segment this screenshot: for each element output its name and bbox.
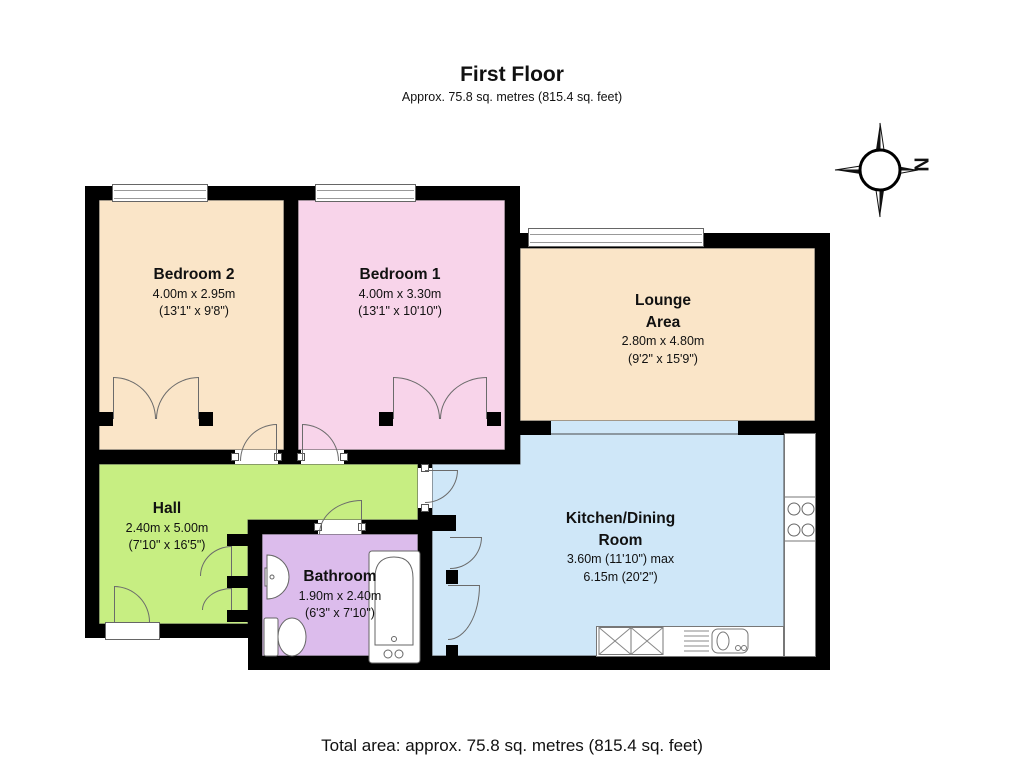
- bathroom-metric: 1.90m x 2.40m: [278, 588, 402, 606]
- lounge-name-line1: Lounge: [573, 290, 753, 312]
- wall-wardrobe1-stub-right: [487, 412, 501, 426]
- window-glass: [530, 234, 702, 243]
- kitchen-name-line2: Room: [528, 530, 713, 552]
- bedroom1-window: [315, 184, 416, 202]
- bedroom1-imperial: (13'1" x 10'10"): [305, 303, 495, 321]
- kitchen-metric: 3.60m (11'10") max: [528, 551, 713, 569]
- window-glass: [317, 190, 414, 199]
- jamb: [421, 504, 429, 512]
- wall-cupboard-stub-mid: [446, 570, 458, 584]
- compass-north-label: N: [909, 157, 932, 171]
- hall-label: Hall 2.40m x 5.00m (7'10" x 16'5"): [93, 498, 241, 555]
- kitchen-counter-bottom: [596, 626, 784, 657]
- floor-plan-page: First Floor Approx. 75.8 sq. metres (815…: [0, 0, 1024, 768]
- bedroom2-metric: 4.00m x 2.95m: [108, 286, 280, 304]
- bedroom2-window: [112, 184, 208, 202]
- bedroom2-imperial: (13'1" x 9'8"): [108, 303, 280, 321]
- wall-wardrobe2-stub-right: [199, 412, 213, 426]
- wall-cupboard-stub-bottom: [446, 645, 458, 658]
- openplan-strip: [551, 421, 738, 435]
- wall-bottom-exterior: [248, 656, 830, 670]
- wall-hallcupboard-stub-bottom: [227, 610, 262, 622]
- hall-name: Hall: [93, 498, 241, 520]
- lounge-label: Lounge Area 2.80m x 4.80m (9'2" x 15'9"): [573, 290, 753, 368]
- wall-wardrobe2-stub-left: [99, 412, 113, 426]
- bedroom2-label: Bedroom 2 4.00m x 2.95m (13'1" x 9'8"): [108, 264, 280, 321]
- kitchen-counter-right: [784, 433, 816, 657]
- window-glass: [114, 190, 206, 199]
- bedroom1-label: Bedroom 1 4.00m x 3.30m (13'1" x 10'10"): [305, 264, 495, 321]
- jamb: [340, 453, 348, 461]
- wall-right-exterior: [815, 233, 830, 670]
- lounge-imperial: (9'2" x 15'9"): [573, 351, 753, 369]
- lounge-window: [528, 228, 704, 247]
- lounge-name-line2: Area: [573, 312, 753, 334]
- hall-metric: 2.40m x 5.00m: [93, 520, 241, 538]
- hall-imperial: (7'10" x 16'5"): [93, 537, 241, 555]
- wall-hallcupboard-stub-mid: [227, 576, 262, 588]
- entrance-threshold: [105, 622, 160, 640]
- kitchen-name-line1: Kitchen/Dining: [528, 508, 713, 530]
- bedroom1-metric: 4.00m x 3.30m: [305, 286, 495, 304]
- kitchen-label: Kitchen/Dining Room 3.60m (11'10") max 6…: [528, 508, 713, 586]
- bedroom2-name: Bedroom 2: [108, 264, 280, 286]
- wall-left-exterior: [85, 186, 99, 638]
- jamb: [231, 453, 239, 461]
- bathroom-label: Bathroom 1.90m x 2.40m (6'3" x 7'10"): [278, 566, 402, 623]
- compass-icon: [826, 116, 938, 228]
- wall-bedroom-divider: [284, 200, 298, 450]
- wall-cupboard-stub-top: [418, 515, 456, 531]
- lounge-metric: 2.80m x 4.80m: [573, 333, 753, 351]
- wall-lounge-bottom-left: [505, 421, 551, 435]
- bedroom1-name: Bedroom 1: [305, 264, 495, 286]
- bathroom-imperial: (6'3" x 7'10"): [278, 605, 402, 623]
- kitchen-imperial: 6.15m (20'2"): [528, 569, 713, 587]
- wall-wardrobe1-stub-left: [379, 412, 393, 426]
- bathroom-name: Bathroom: [278, 566, 402, 588]
